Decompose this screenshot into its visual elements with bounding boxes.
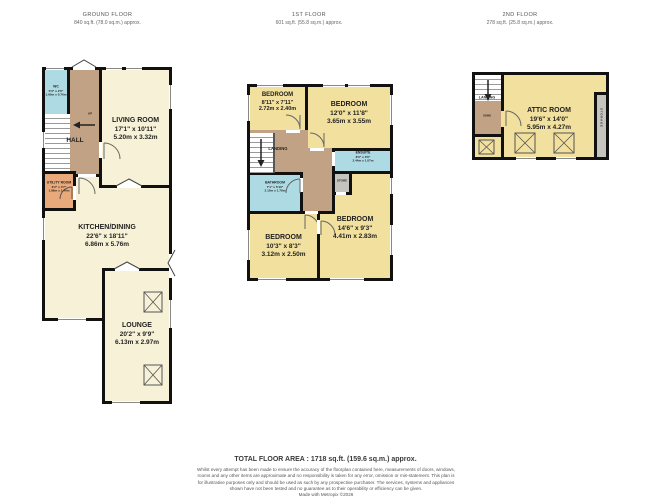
window <box>106 67 122 70</box>
wc-label: WC 5'3" x 2'6" 1.60m x 0.76m <box>37 85 74 97</box>
window <box>330 278 364 281</box>
second-floor-header: 2ND FLOOR 278 sq.ft. (25.8 sq.m.) approx… <box>450 12 590 26</box>
bedroom3-label: BEDROOM 10'3" x 8'3" 3.12m x 2.50m <box>247 234 320 259</box>
ensuite-label: ENSUITE 8'0" x 3'6" 2.44m x 1.07m <box>338 151 388 163</box>
door-opening <box>336 192 346 195</box>
credit-text: Made with Metropix ©2026 <box>196 492 456 497</box>
hall-label: HALL <box>55 137 95 144</box>
store-label: STORE <box>330 179 354 183</box>
ground-floor-area: 840 sq.ft. (78.0 sq.m.) approx. <box>30 20 185 26</box>
door-opening <box>310 148 324 151</box>
first-floor-header: 1ST FLOOR 601 sq.ft. (55.8 sq.m.) approx… <box>236 12 382 26</box>
door-opening <box>99 142 102 158</box>
window <box>112 401 140 404</box>
window <box>556 157 576 160</box>
stairs-arrow-icon <box>256 136 266 170</box>
skylight-icon <box>143 364 163 386</box>
window <box>258 278 286 281</box>
bedroom1-label: BEDROOM 8'11" x 7'11" 2.72m x 2.40m <box>247 92 308 113</box>
door-arc-icon <box>285 114 301 130</box>
living-room-label: LIVING ROOM 17'1" x 10'11" 5.20m x 3.32m <box>99 117 172 142</box>
kitchen-dining-label: KITCHEN/DINING 22'6" x 18'11" 6.86m x 5.… <box>50 224 164 249</box>
second-floor-title: 2ND FLOOR <box>450 12 590 18</box>
window <box>516 157 536 160</box>
first-floor-title: 1ST FLOOR <box>236 12 382 18</box>
skylight-icon <box>143 291 163 313</box>
window <box>390 178 393 194</box>
up-label: UP <box>81 112 99 116</box>
bedroom2-label: BEDROOM 12'0" x 11'8" 3.65m x 3.55m <box>305 101 393 126</box>
utility-label: UTILITY ROOM 6'2" x 4'7" 1.88m x 1.40m <box>37 181 80 193</box>
window <box>126 67 142 70</box>
bathroom-label: BATHROOM 7'1" x 5'10" 2.15m x 1.78m <box>251 181 298 193</box>
ground-floor-title: GROUND FLOOR <box>30 12 185 18</box>
skylight-icon <box>514 132 536 154</box>
lounge-label: LOUNGE 20'2" x 9'9" 6.13m x 2.97m <box>102 322 172 347</box>
door-opening <box>286 130 300 133</box>
attic-room-label: ATTIC ROOM 19'6" x 14'0" 5.95m x 4.27m <box>504 107 594 132</box>
bedroom4-label: BEDROOM 14'6" x 9'3" 4.41m x 2.83m <box>317 216 393 241</box>
down-label: DOWN <box>475 114 499 117</box>
window <box>348 84 370 87</box>
door-opening <box>332 152 335 166</box>
first-landing-label: LANDING <box>262 147 293 151</box>
door-arc-icon <box>309 132 325 148</box>
wall-segment <box>501 75 504 111</box>
skylight-icon <box>553 132 575 154</box>
window <box>323 84 345 87</box>
wall-segment <box>501 137 504 157</box>
second-landing-label: LANDING <box>469 96 505 100</box>
storage-label: STORAGE <box>599 108 603 128</box>
ground-floor-header: GROUND FLOOR 840 sq.ft. (78.0 sq.m.) app… <box>30 12 185 26</box>
window <box>58 318 86 321</box>
window <box>42 132 45 148</box>
wall-segment <box>475 134 504 137</box>
window <box>42 218 45 240</box>
double-door-icon <box>114 177 144 187</box>
window <box>46 67 64 70</box>
first-floor-area: 601 sq.ft. (55.8 sq.m.) approx. <box>236 20 382 26</box>
front-door-icon <box>70 58 98 68</box>
window <box>169 85 172 109</box>
window <box>257 84 283 87</box>
door-arc-icon <box>103 142 121 160</box>
double-door-icon <box>112 260 142 270</box>
total-floor-area: TOTAL FLOOR AREA : 1718 sq.ft. (159.6 sq… <box>0 456 651 463</box>
second-landing <box>475 101 501 134</box>
stairs-up-arrow-icon <box>70 120 98 130</box>
double-door-icon <box>166 248 176 278</box>
wall-segment <box>332 192 335 214</box>
second-floor-area: 278 sq.ft. (25.8 sq.m.) approx. <box>450 20 590 26</box>
disclaimer-text: Whilst every attempt has been made to en… <box>196 467 456 493</box>
skylight-icon <box>478 139 495 155</box>
